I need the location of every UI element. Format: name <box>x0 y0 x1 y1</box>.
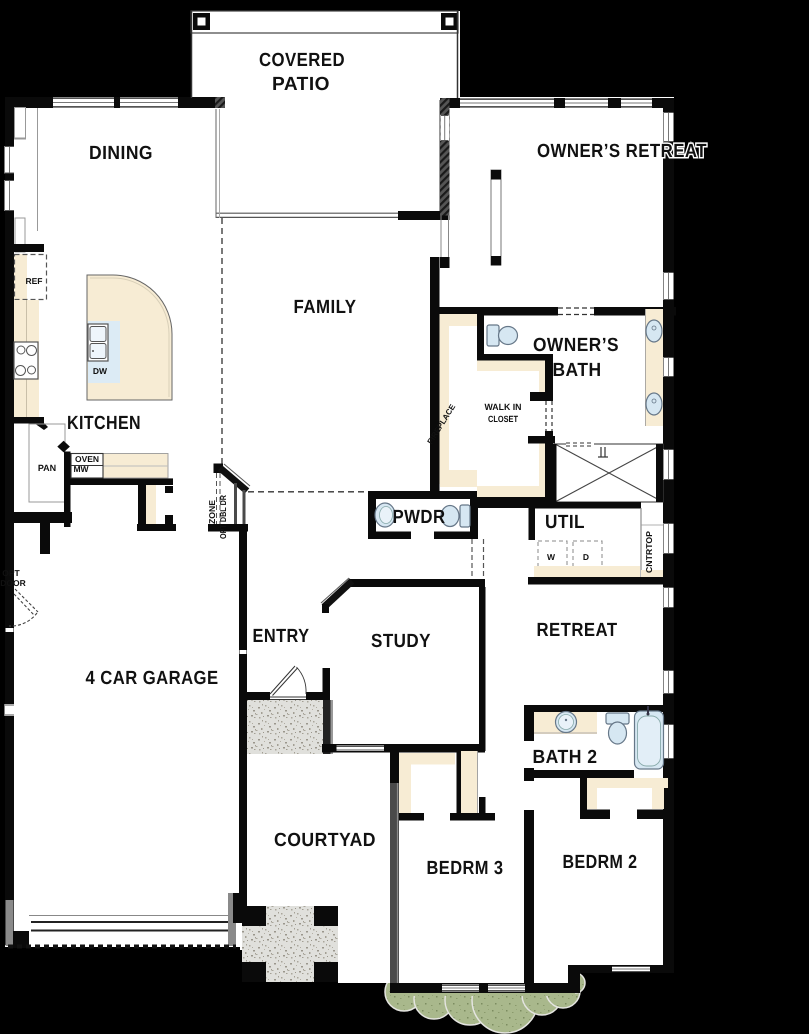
svg-text:COURTYAD: COURTYAD <box>274 830 376 851</box>
svg-text:REF: REF <box>26 276 43 286</box>
svg-text:FAMILY: FAMILY <box>294 297 357 318</box>
svg-text:CNTRTOP: CNTRTOP <box>644 531 654 573</box>
svg-text:PAN: PAN <box>38 463 56 473</box>
svg-text:COVERED: COVERED <box>259 50 345 71</box>
svg-text:RETREAT: RETREAT <box>537 620 618 641</box>
svg-text:W: W <box>547 552 556 562</box>
svg-text:UTIL: UTIL <box>545 512 585 533</box>
svg-text:WALK IN: WALK IN <box>485 402 522 412</box>
svg-text:MW: MW <box>73 464 89 474</box>
svg-text:ENTRY: ENTRY <box>253 626 310 647</box>
svg-text:PATIO: PATIO <box>272 74 330 95</box>
svg-text:D: D <box>583 552 589 562</box>
svg-text:ZONE: ZONE <box>207 500 217 524</box>
svg-text:OWNER’S: OWNER’S <box>533 335 619 356</box>
svg-text:4 CAR GARAGE: 4 CAR GARAGE <box>86 668 219 689</box>
svg-text:OWNER’S RETREAT: OWNER’S RETREAT <box>537 141 707 162</box>
svg-text:BEDRM 2: BEDRM 2 <box>563 852 638 873</box>
svg-text:DINING: DINING <box>89 143 153 164</box>
svg-text:OPT DBL DR: OPT DBL DR <box>218 495 228 539</box>
svg-text:DOOR: DOOR <box>0 578 26 588</box>
svg-text:STUDY: STUDY <box>371 631 431 652</box>
svg-text:DW: DW <box>93 366 108 376</box>
svg-text:OPT: OPT <box>2 568 20 578</box>
svg-text:PWDR: PWDR <box>393 507 446 528</box>
svg-text:BATH 2: BATH 2 <box>533 747 598 768</box>
svg-text:CLOSET: CLOSET <box>488 414 518 424</box>
svg-text:OVEN: OVEN <box>75 454 99 464</box>
svg-text:BEDRM 3: BEDRM 3 <box>427 858 504 879</box>
svg-text:BATH: BATH <box>553 360 602 381</box>
svg-text:KITCHEN: KITCHEN <box>67 413 141 434</box>
